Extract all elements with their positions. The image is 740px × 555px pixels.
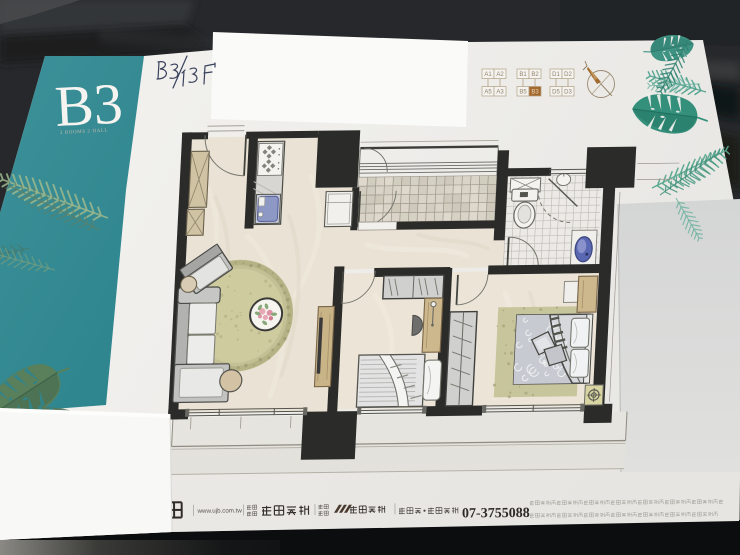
svg-text:D1: D1 xyxy=(552,72,560,78)
svg-text:A5: A5 xyxy=(484,90,492,96)
svg-text:A2: A2 xyxy=(496,72,504,78)
svg-text:B1: B1 xyxy=(519,72,527,78)
svg-text:A3: A3 xyxy=(496,90,504,96)
svg-text:B5: B5 xyxy=(519,90,527,96)
svg-text:B3: B3 xyxy=(531,90,539,96)
svg-text:D5: D5 xyxy=(552,90,560,96)
svg-text:A1: A1 xyxy=(484,72,492,78)
svg-text:B2: B2 xyxy=(531,72,539,78)
svg-text:D3: D3 xyxy=(564,90,572,96)
svg-text:www.ujb.com.tw: www.ujb.com.tw xyxy=(196,507,242,514)
svg-text:D2: D2 xyxy=(564,72,572,78)
svg-text:07-3755088: 07-3755088 xyxy=(462,506,530,521)
